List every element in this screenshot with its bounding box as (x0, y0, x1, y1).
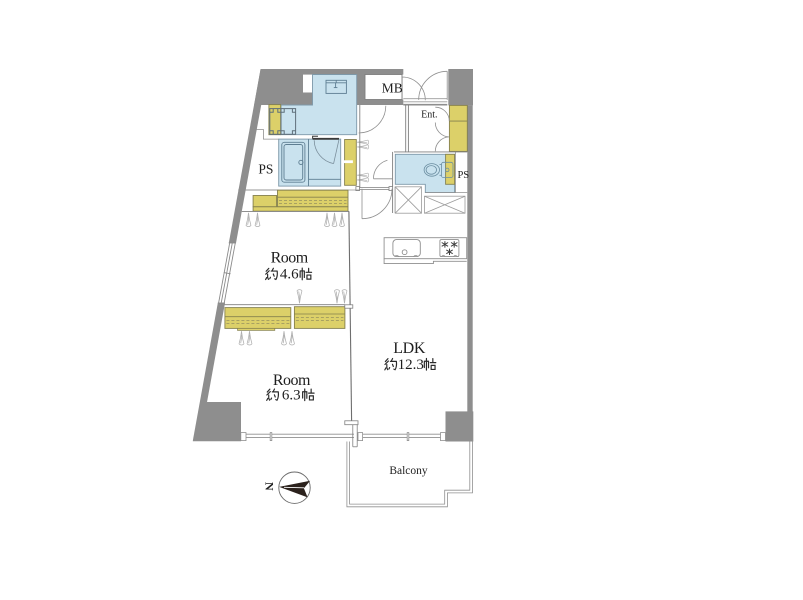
svg-text:Room: Room (271, 250, 309, 267)
svg-text:Room: Room (273, 372, 311, 389)
svg-text:Ent.: Ent. (421, 109, 437, 120)
svg-text:12.3: 12.3 (398, 357, 424, 373)
svg-text:MB: MB (382, 81, 403, 96)
svg-text:PS: PS (258, 162, 273, 177)
svg-text:PS: PS (457, 170, 469, 181)
svg-text:4.6: 4.6 (280, 267, 299, 283)
svg-text:Balcony: Balcony (389, 465, 428, 477)
svg-text:LDK: LDK (393, 340, 426, 357)
svg-text:6.3: 6.3 (282, 387, 301, 403)
svg-text:N: N (263, 482, 277, 491)
